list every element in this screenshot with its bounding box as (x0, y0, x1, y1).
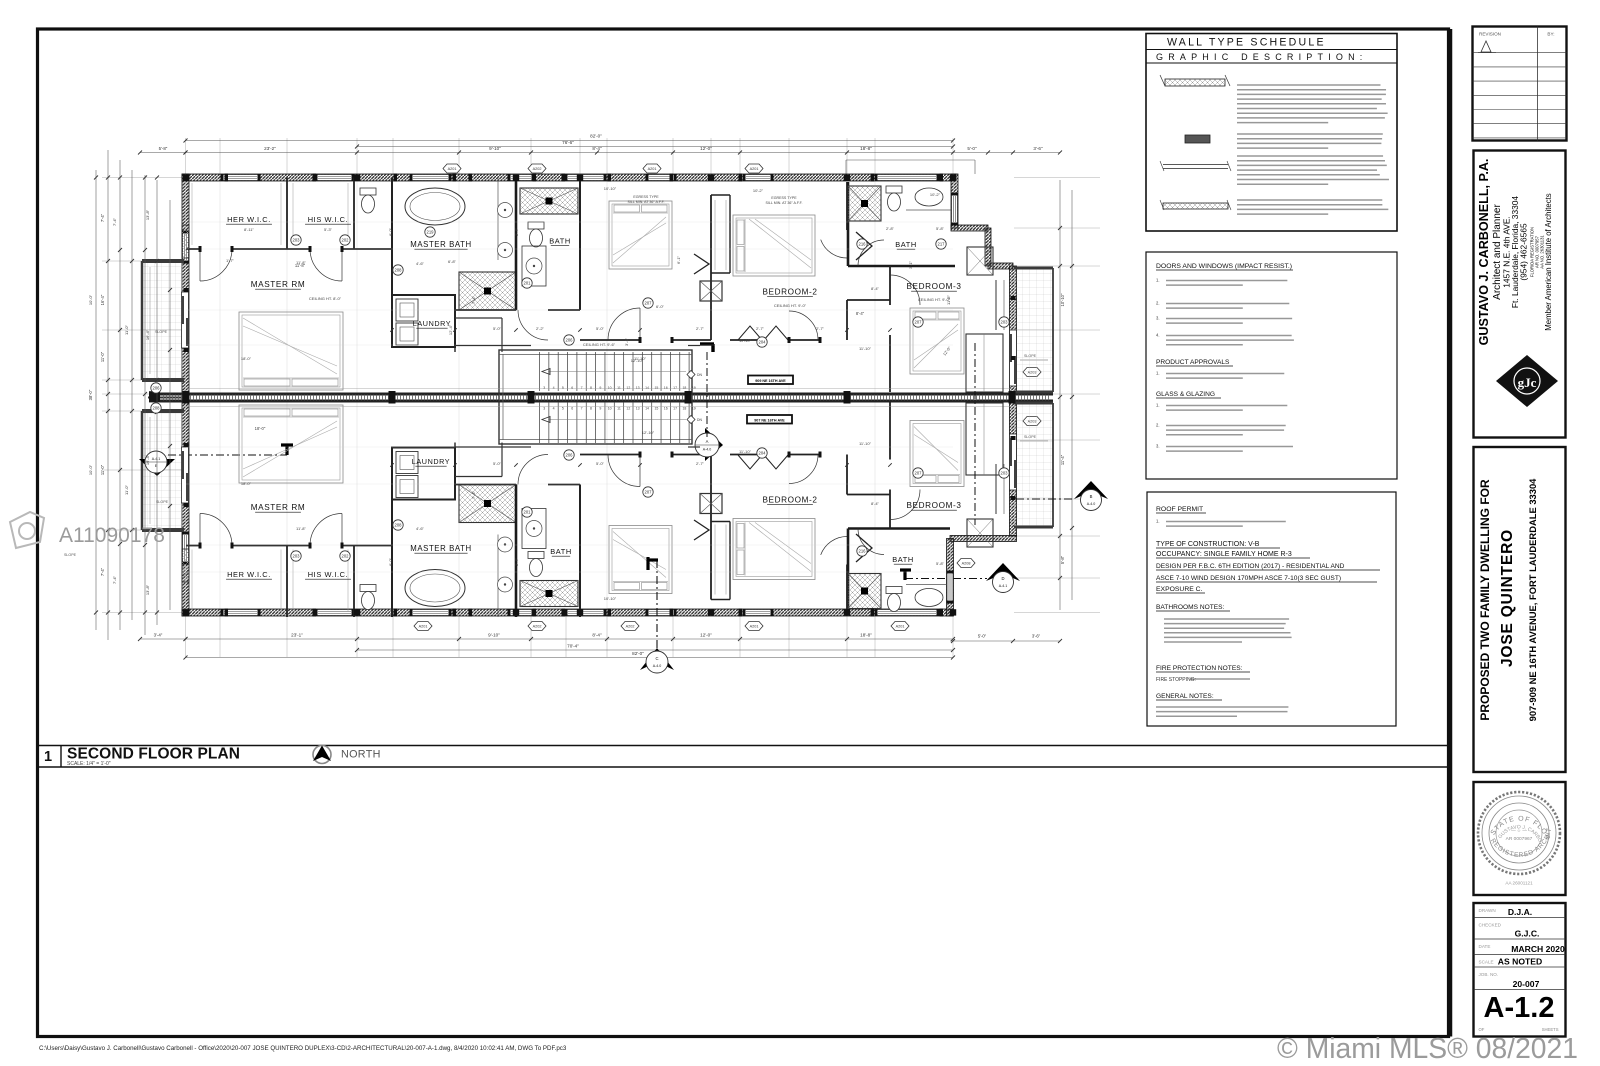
svg-text:A-4.1: A-4.1 (152, 457, 161, 461)
svg-text:2'-4": 2'-4" (514, 557, 519, 566)
svg-text:5'-0": 5'-0" (596, 326, 605, 331)
svg-text:AR 0007967: AR 0007967 (1506, 836, 1533, 842)
svg-text:2'-7": 2'-7" (756, 326, 765, 331)
svg-text:3'-6": 3'-6" (1032, 634, 1041, 639)
svg-text:76'-6": 76'-6" (562, 140, 574, 145)
svg-text:DN: DN (697, 373, 702, 377)
svg-text:MASTER BATH: MASTER BATH (410, 240, 471, 249)
svg-text:TYPE OF CONSTRUCTION: V-B: TYPE OF CONSTRUCTION: V-B (1156, 541, 1260, 548)
svg-text:G.J.C.: G.J.C. (1515, 929, 1540, 939)
svg-text:MASTER RM: MASTER RM (251, 280, 306, 289)
svg-text:3.: 3. (1156, 316, 1160, 321)
svg-text:BEDROOM-2: BEDROOM-2 (763, 496, 818, 505)
svg-text:4: 4 (553, 407, 555, 411)
svg-text:202: 202 (342, 238, 350, 243)
svg-text:201: 201 (524, 281, 532, 286)
svg-text:13'-8": 13'-8" (145, 584, 150, 595)
svg-text:1: 1 (44, 749, 52, 765)
svg-text:CEILING HT. 9'-0": CEILING HT. 9'-0" (918, 297, 951, 302)
svg-text:7'-4": 7'-4" (112, 575, 117, 584)
svg-text:203: 203 (1001, 320, 1009, 325)
svg-text:8'-4": 8'-4" (871, 286, 880, 291)
svg-text:23'-2": 23'-2" (264, 146, 276, 151)
svg-text:208: 208 (395, 268, 403, 273)
svg-text:LAUNDRY: LAUNDRY (413, 319, 451, 328)
svg-text:6'-0": 6'-0" (388, 227, 393, 236)
svg-text:GUSTAVO J. CARBONELL, P.A.: GUSTAVO J. CARBONELL, P.A. (1477, 159, 1491, 346)
svg-text:909 NE 16TH AVE: 909 NE 16TH AVE (755, 379, 786, 383)
svg-text:4'-6": 4'-6" (416, 261, 425, 266)
svg-text:5: 5 (562, 407, 564, 411)
svg-text:BY:: BY: (1547, 32, 1554, 37)
svg-text:5'-0": 5'-0" (978, 634, 987, 639)
svg-text:(954) 462-6565: (954) 462-6565 (1519, 223, 1529, 281)
svg-text:19: 19 (692, 407, 696, 411)
svg-text:9: 9 (599, 407, 601, 411)
svg-text:1'-7": 1'-7" (226, 258, 235, 263)
svg-text:CEILING HT. 9'-0": CEILING HT. 9'-0" (774, 303, 807, 308)
svg-text:6'-8": 6'-8" (448, 259, 457, 264)
svg-text:7'-4": 7'-4" (471, 490, 476, 499)
svg-text:16'-4": 16'-4" (145, 454, 150, 465)
svg-text:ROOF PERMIT: ROOF PERMIT (1156, 506, 1203, 513)
svg-text:3.: 3. (1156, 444, 1160, 449)
svg-text:7: 7 (581, 386, 583, 390)
svg-text:16: 16 (664, 386, 668, 390)
svg-text:2'-2": 2'-2" (536, 326, 545, 331)
svg-text:GLASS & GLAZING: GLASS & GLAZING (1156, 391, 1215, 398)
svg-text:MARCH 2020: MARCH 2020 (1511, 944, 1565, 954)
svg-text:LAUNDRY: LAUNDRY (412, 457, 450, 466)
svg-text:3'-6": 3'-6" (1033, 146, 1043, 151)
svg-text:A-1.2: A-1.2 (1484, 992, 1555, 1024)
svg-text:10'-0": 10'-0" (88, 294, 93, 305)
svg-text:907-909 NE 16TH AVENUE, FORT L: 907-909 NE 16TH AVENUE, FORT LAUDERDALE … (1527, 478, 1538, 722)
svg-text:MASTER RM: MASTER RM (251, 503, 306, 512)
svg-text:8'-4": 8'-4" (592, 633, 602, 638)
svg-text:207: 207 (915, 320, 923, 325)
svg-text:11'-10": 11'-10" (739, 338, 752, 343)
svg-text:A: A (706, 439, 709, 444)
svg-text:6'-0": 6'-0" (656, 304, 665, 309)
svg-text:PRODUCT APPROVALS: PRODUCT APPROVALS (1156, 359, 1230, 366)
svg-text:12'-0": 12'-0" (700, 633, 712, 638)
svg-text:2'-7": 2'-7" (696, 326, 705, 331)
svg-text:A201: A201 (750, 167, 759, 171)
svg-text:907 NE 16TH AVE: 907 NE 16TH AVE (754, 418, 785, 422)
svg-text:GRAPHIC DESCRIPTION:: GRAPHIC DESCRIPTION: (1156, 52, 1368, 62)
svg-text:BATH: BATH (895, 240, 917, 249)
svg-text:A202: A202 (626, 625, 635, 629)
svg-text:14: 14 (645, 386, 649, 390)
svg-text:206: 206 (153, 386, 161, 391)
svg-text:2'-8": 2'-8" (886, 226, 895, 231)
svg-text:5'-0": 5'-0" (493, 326, 502, 331)
svg-text:4: 4 (553, 386, 555, 390)
svg-text:11'-0": 11'-0" (124, 324, 129, 334)
svg-text:14: 14 (645, 407, 649, 411)
svg-text:BEDROOM-3: BEDROOM-3 (907, 501, 962, 510)
svg-text:207: 207 (645, 301, 653, 306)
svg-text:15: 15 (654, 386, 658, 390)
svg-text:SLOPE: SLOPE (155, 330, 168, 334)
svg-text:216: 216 (859, 242, 867, 247)
svg-text:A202: A202 (533, 625, 542, 629)
svg-text:A201: A201 (448, 167, 457, 171)
svg-text:13: 13 (636, 407, 640, 411)
svg-text:BATH: BATH (550, 547, 572, 556)
svg-text:11'-8": 11'-8" (296, 526, 306, 531)
svg-text:A-4.0: A-4.0 (703, 448, 712, 452)
svg-text:4'-6": 4'-6" (416, 526, 425, 531)
svg-text:7: 7 (581, 407, 583, 411)
svg-text:SHEETS: SHEETS (1542, 1027, 1559, 1032)
svg-text:A-4.0: A-4.0 (1087, 502, 1096, 506)
svg-text:18'-0": 18'-0" (255, 426, 266, 431)
svg-text:B: B (1090, 494, 1093, 499)
svg-text:20-007: 20-007 (1513, 979, 1540, 989)
svg-text:208: 208 (153, 406, 161, 411)
svg-text:11'-10": 11'-10" (859, 441, 872, 446)
svg-text:SLOPE: SLOPE (64, 553, 77, 557)
svg-text:5'-8": 5'-8" (159, 146, 168, 151)
svg-text:HER W.I.C.: HER W.I.C. (227, 570, 271, 579)
svg-text:8'-11": 8'-11" (244, 227, 254, 232)
svg-text:5'-0": 5'-0" (493, 461, 502, 466)
svg-text:2.: 2. (1156, 423, 1160, 428)
svg-text:JOB. NO.: JOB. NO. (1479, 972, 1499, 977)
svg-text:18'-8": 18'-8" (860, 146, 872, 151)
svg-text:5'-8": 5'-8" (1060, 555, 1065, 564)
svg-text:16'-4": 16'-4" (145, 329, 150, 340)
svg-text:3: 3 (543, 407, 545, 411)
svg-text:70'-4": 70'-4" (567, 644, 579, 649)
svg-text:OCCUPANCY: SINGLE FAMILY HO: OCCUPANCY: SINGLE FAMILY HOME R-3 (1156, 551, 1292, 558)
svg-text:SCALE: 1/4" = 1'-0": SCALE: 1/4" = 1'-0" (67, 761, 111, 767)
svg-text:206: 206 (566, 453, 574, 458)
svg-text:12'-0": 12'-0" (700, 146, 712, 151)
svg-text:HIS W.I.C.: HIS W.I.C. (308, 215, 349, 224)
svg-text:12: 12 (626, 407, 630, 411)
svg-text:18'-8": 18'-8" (860, 633, 872, 638)
svg-text:8'-4": 8'-4" (856, 311, 865, 316)
svg-text:EGRESS TYPE: EGRESS TYPE (771, 196, 797, 200)
svg-text:2.: 2. (1156, 301, 1160, 306)
svg-text:16'-4": 16'-4" (100, 294, 105, 305)
svg-text:3: 3 (543, 386, 545, 390)
svg-text:18'-0": 18'-0" (241, 356, 252, 361)
svg-text:SLOPE: SLOPE (156, 500, 169, 504)
svg-text:7'-4": 7'-4" (112, 217, 117, 226)
svg-text:3'-4": 3'-4" (154, 633, 163, 638)
svg-text:11'-0": 11'-0" (100, 351, 105, 362)
svg-text:PROPOSED TWO FAMILY DWELLING F: PROPOSED TWO FAMILY DWELLING FOR (1478, 479, 1492, 721)
svg-text:1.: 1. (1156, 519, 1160, 524)
svg-text:10'-2": 10'-2" (753, 188, 764, 193)
svg-text:10'-0": 10'-0" (88, 464, 93, 475)
svg-text:BEDROOM-2: BEDROOM-2 (763, 288, 818, 297)
svg-text:6: 6 (571, 386, 573, 390)
svg-text:SCALE: SCALE (1479, 960, 1494, 965)
svg-text:FIRE STOPPING:: FIRE STOPPING: (1156, 677, 1196, 683)
svg-text:17: 17 (673, 386, 677, 390)
svg-text:8: 8 (590, 407, 592, 411)
svg-text:ASCE 7-10 WIND DESIGN 170MPH A: ASCE 7-10 WIND DESIGN 170MPH ASCE 7-10(3… (1156, 575, 1341, 582)
svg-text:SILL MIN. AT 36" A.F.F.: SILL MIN. AT 36" A.F.F. (628, 200, 665, 204)
svg-text:7'-4": 7'-4" (471, 295, 476, 304)
svg-text:204: 204 (759, 340, 767, 345)
svg-text:CEILING HT. 9'-6": CEILING HT. 9'-6" (583, 342, 616, 347)
svg-text:10'-10": 10'-10" (604, 596, 617, 601)
svg-text:15: 15 (654, 407, 658, 411)
svg-text:2'-7": 2'-7" (816, 326, 825, 331)
svg-text:A201: A201 (896, 625, 905, 629)
svg-text:BATH: BATH (892, 555, 914, 564)
svg-text:219: 219 (427, 230, 435, 235)
svg-text:DRAWN: DRAWN (1479, 908, 1496, 913)
svg-text:38'-0": 38'-0" (88, 389, 93, 400)
svg-text:201: 201 (524, 510, 532, 515)
svg-text:BATH: BATH (549, 237, 571, 246)
svg-text:7'-4": 7'-4" (100, 567, 105, 576)
svg-text:CEILING HT. 8'-0": CEILING HT. 8'-0" (309, 296, 342, 301)
svg-text:A201: A201 (419, 625, 428, 629)
svg-text:202: 202 (342, 554, 350, 559)
svg-text:EXPOSURE C.: EXPOSURE C. (1156, 586, 1203, 593)
svg-text:© Miami MLS® 08/2021: © Miami MLS® 08/2021 (1277, 1033, 1578, 1065)
svg-text:5'-0": 5'-0" (967, 146, 977, 151)
svg-text:13: 13 (636, 386, 640, 390)
svg-text:217: 217 (938, 242, 946, 247)
svg-text:A-4.0: A-4.0 (653, 664, 662, 668)
svg-text:GENERAL NOTES:: GENERAL NOTES: (1156, 693, 1214, 700)
svg-text:C: C (655, 656, 658, 661)
svg-text:7'-4": 7'-4" (100, 213, 105, 222)
svg-text:11'-10": 11'-10" (739, 449, 752, 454)
svg-text:HER W.I.C.: HER W.I.C. (227, 215, 271, 224)
svg-text:82'-0": 82'-0" (590, 134, 602, 139)
svg-text:6: 6 (571, 407, 573, 411)
svg-text:JOSE QUINTERO: JOSE QUINTERO (1499, 529, 1516, 667)
svg-text:BATHROOMS NOTES:: BATHROOMS NOTES: (1156, 604, 1225, 611)
svg-text:11'-0": 11'-0" (124, 484, 129, 494)
svg-text:16: 16 (664, 407, 668, 411)
svg-text:9'-10": 9'-10" (489, 146, 501, 151)
svg-text:MASTER BATH: MASTER BATH (410, 544, 471, 553)
svg-text:9'-10": 9'-10" (488, 633, 500, 638)
svg-text:10'-10": 10'-10" (604, 186, 617, 191)
svg-text:2'-4": 2'-4" (514, 227, 519, 236)
svg-text:WALL TYPE SCHEDULE: WALL TYPE SCHEDULE (1167, 37, 1326, 49)
svg-text:13'-8": 13'-8" (145, 209, 150, 220)
svg-text:6'-0": 6'-0" (388, 557, 393, 566)
svg-text:206: 206 (566, 338, 574, 343)
svg-text:203: 203 (293, 554, 301, 559)
svg-text:8: 8 (590, 386, 592, 390)
svg-text:4.: 4. (1156, 333, 1160, 338)
svg-text:6'-1": 6'-1" (676, 255, 681, 264)
svg-text:9: 9 (599, 386, 601, 390)
svg-text:208: 208 (395, 523, 403, 528)
svg-text:204: 204 (759, 451, 767, 456)
svg-text:2'-7": 2'-7" (696, 461, 705, 466)
svg-text:82'-0": 82'-0" (632, 651, 644, 656)
svg-text:203: 203 (293, 238, 301, 243)
svg-text:10: 10 (608, 386, 612, 390)
svg-text:17: 17 (673, 407, 677, 411)
svg-text:11'-10": 11'-10" (634, 356, 647, 361)
svg-text:C:\Users\Daisy\Gustavo J. Carb: C:\Users\Daisy\Gustavo J. Carbonell\Gust… (39, 1045, 567, 1052)
svg-text:AS NOTED: AS NOTED (1498, 957, 1542, 967)
svg-text:D.J.A.: D.J.A. (1508, 907, 1532, 917)
svg-text:5'-0": 5'-0" (596, 461, 605, 466)
svg-text:18: 18 (682, 407, 686, 411)
svg-text:A208: A208 (962, 562, 971, 566)
svg-text:12'-10": 12'-10" (642, 430, 655, 435)
svg-text:BEDROOM-3: BEDROOM-3 (907, 282, 962, 291)
svg-text:D: D (1001, 576, 1004, 581)
svg-text:NORTH: NORTH (341, 749, 381, 761)
svg-text:11'-10": 11'-10" (859, 346, 872, 351)
svg-text:207: 207 (915, 471, 923, 476)
svg-text:11: 11 (617, 386, 621, 390)
svg-text:— ☆ —: — ☆ — (1511, 828, 1527, 833)
svg-text:3'-1": 3'-1" (908, 260, 913, 269)
svg-text:1.: 1. (1156, 371, 1160, 376)
svg-text:10'-10": 10'-10" (1060, 293, 1065, 307)
svg-text:Member American Institute of A: Member American Institute of Architects (1544, 193, 1553, 330)
svg-text:11: 11 (617, 407, 621, 411)
svg-text:CHECKED: CHECKED (1479, 923, 1502, 928)
svg-text:5: 5 (562, 386, 564, 390)
svg-text:HIS W.I.C.: HIS W.I.C. (308, 570, 349, 579)
svg-text:18'-0": 18'-0" (241, 481, 252, 486)
svg-text:11'-4": 11'-4" (1060, 454, 1065, 465)
svg-text:EGRESS TYPE: EGRESS TYPE (633, 195, 659, 199)
svg-text:gJc: gJc (1518, 375, 1537, 390)
svg-text:12: 12 (626, 386, 630, 390)
svg-text:DESIGN PER F.B.C. 6TH EDITION: DESIGN PER F.B.C. 6TH EDITION (2017) - R… (1156, 563, 1345, 570)
svg-text:SILL MIN. AT 36" A.F.F.: SILL MIN. AT 36" A.F.F. (766, 201, 803, 205)
svg-text:DATE: DATE (1479, 944, 1491, 949)
svg-text:19: 19 (692, 386, 696, 390)
svg-text:A201: A201 (750, 625, 759, 629)
svg-text:A11090178: A11090178 (59, 524, 165, 547)
svg-text:A202: A202 (533, 167, 542, 171)
svg-text:11'-0": 11'-0" (100, 464, 105, 475)
svg-text:1.: 1. (1156, 278, 1160, 283)
svg-text:23'-1": 23'-1" (291, 633, 303, 638)
svg-text:216: 216 (859, 549, 867, 554)
svg-text:AA 26001121: AA 26001121 (1505, 881, 1533, 886)
svg-text:11'-8": 11'-8" (295, 263, 306, 268)
svg-text:8'-4": 8'-4" (592, 146, 602, 151)
svg-text:8'-4": 8'-4" (871, 501, 880, 506)
svg-text:FIRE PROTECTION NOTES:: FIRE PROTECTION NOTES: (1156, 665, 1243, 672)
svg-text:10: 10 (608, 407, 612, 411)
svg-text:DN: DN (697, 418, 702, 422)
svg-text:A-4.1: A-4.1 (999, 584, 1008, 588)
svg-text:1.: 1. (1156, 403, 1160, 408)
svg-text:18: 18 (682, 386, 686, 390)
svg-text:A201: A201 (648, 167, 657, 171)
svg-text:3'-4": 3'-4" (624, 337, 629, 346)
svg-text:5'-3": 5'-3" (324, 227, 333, 232)
svg-text:207: 207 (645, 490, 653, 495)
svg-text:DOORS AND WINDOWS (IMPACT RESI: DOORS AND WINDOWS (IMPACT RESIST.) (1156, 263, 1292, 270)
svg-text:REVISION: REVISION (1479, 32, 1501, 37)
svg-text:OF: OF (1479, 1027, 1485, 1032)
svg-text:10'-2": 10'-2" (930, 192, 941, 197)
svg-text:203: 203 (1001, 471, 1009, 476)
svg-text:5'-8": 5'-8" (936, 561, 945, 566)
svg-text:5'-8": 5'-8" (936, 226, 945, 231)
